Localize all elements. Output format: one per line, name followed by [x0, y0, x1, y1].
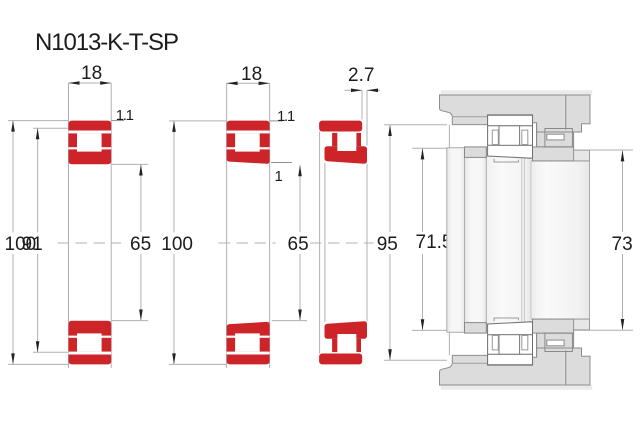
svg-text:65: 65	[288, 234, 309, 255]
svg-text:100: 100	[161, 234, 193, 255]
svg-text:18: 18	[81, 63, 102, 84]
svg-text:65: 65	[130, 234, 151, 255]
svg-text:N1013-K-T-SP: N1013-K-T-SP	[35, 29, 178, 56]
svg-text:18: 18	[241, 64, 262, 85]
svg-text:73: 73	[612, 234, 633, 255]
svg-text:95: 95	[377, 234, 398, 255]
svg-text:1.1: 1.1	[116, 107, 134, 124]
svg-text:1: 1	[275, 168, 283, 185]
svg-text:91: 91	[22, 234, 43, 255]
svg-text:1.1: 1.1	[277, 108, 295, 125]
svg-text:2.7: 2.7	[348, 65, 374, 86]
